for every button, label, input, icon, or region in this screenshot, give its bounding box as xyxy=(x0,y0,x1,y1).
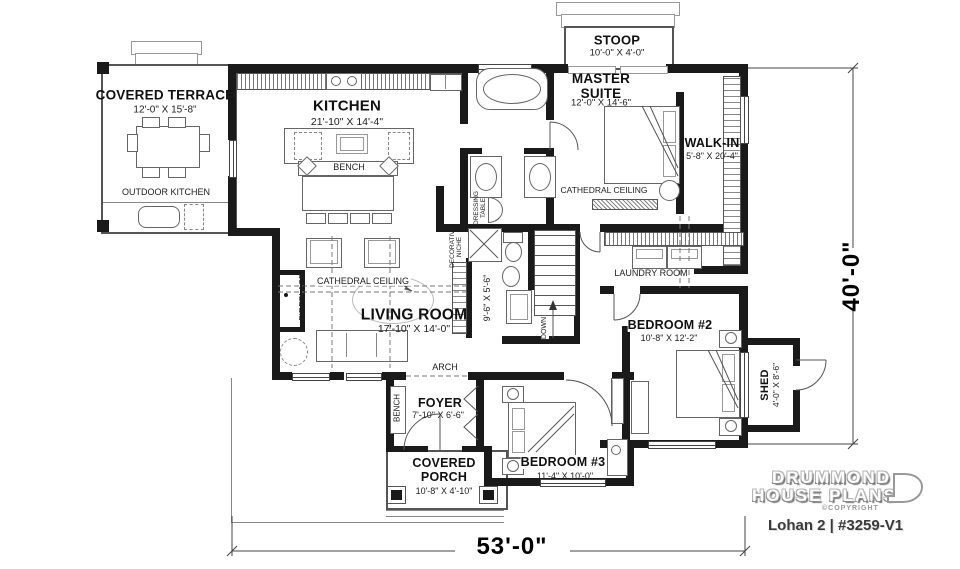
room-label-shed: SHED xyxy=(759,369,771,400)
stairs-arrowhead xyxy=(549,300,557,310)
label-stairs-down: DOWN xyxy=(541,317,549,339)
room-label-foyer: FOYER xyxy=(418,396,462,410)
room-dims-master-suite: 12'-0" X 14'-6" xyxy=(571,99,631,110)
label-dressing-table: DRESSING TABLE xyxy=(473,191,487,225)
label-decorative-niche: DECORATIVE NICHE xyxy=(449,226,463,268)
room-dims-covered-terrace: 12'-0" X 15'-8" xyxy=(133,104,196,116)
label-master-cathedral-ceiling: CATHEDRAL CEILING xyxy=(561,186,648,196)
brand-line1: DRUMMOND xyxy=(772,468,891,488)
label-outdoor-kitchen: OUTDOOR KITCHEN xyxy=(122,187,210,197)
label-living-cathedral-ceiling: CATHEDRAL CEILING xyxy=(315,276,411,286)
drummond-logo-icon xyxy=(880,462,928,510)
room-dims-covered-porch: 10'-8" X 4'-10" xyxy=(416,486,473,496)
room-dims-shed: 4'-0" X 8'-6" xyxy=(772,363,782,407)
room-label-kitchen: KITCHEN xyxy=(313,99,381,116)
label-fireplace: FIREPLACE xyxy=(298,273,308,320)
floor-plan: COVERED TERRACE 12'-0" X 15'-8" OUTDOOR … xyxy=(0,0,960,569)
room-label-walk-in: WALK-IN xyxy=(685,136,740,150)
room-dims-living-room: 17'-10" X 14'-0" xyxy=(378,323,450,335)
plan-title: Lohan 2 | #3259-V1 xyxy=(768,517,903,534)
room-label-bedroom2: BEDROOM #2 xyxy=(628,318,713,332)
room-dims-foyer: 7'-10" X 6'-6" xyxy=(412,410,464,420)
room-label-bedroom3: BEDROOM #3 xyxy=(521,455,606,469)
room-dims-bedroom3: 11'-4" X 10'-0" xyxy=(537,471,593,481)
room-dims-bedroom2: 10'-8" X 12'-2" xyxy=(641,333,698,343)
room-label-covered-terrace: COVERED TERRACE xyxy=(96,87,235,102)
brand-line2: HOUSE PLANS xyxy=(752,486,897,506)
room-dims-walk-in: 5'-8" X 20'-4" xyxy=(686,151,738,161)
room-label-stoop: STOOP xyxy=(594,34,640,49)
room-label-living-room: LIVING ROOM xyxy=(361,306,467,323)
room-label-covered-porch: COVERED PORCH xyxy=(412,456,475,484)
dims-hallway: 9'-6" X 5'-6" xyxy=(482,275,492,322)
copyright-label: ©COPYRIGHT xyxy=(822,505,879,512)
room-dims-stoop: 10'-0" X 4'-0" xyxy=(590,49,645,60)
overall-depth-dimension: 40'-0" xyxy=(838,240,866,311)
room-dims-kitchen: 21'-10" X 14'-4" xyxy=(311,116,383,128)
room-label-laundry: LAUNDRY ROOM xyxy=(614,268,687,278)
label-kitchen-bench: BENCH xyxy=(333,162,365,172)
label-foyer-bench: BENCH xyxy=(392,394,401,422)
overall-width-dimension: 53'-0" xyxy=(476,533,547,561)
label-arch: ARCH xyxy=(432,362,458,372)
